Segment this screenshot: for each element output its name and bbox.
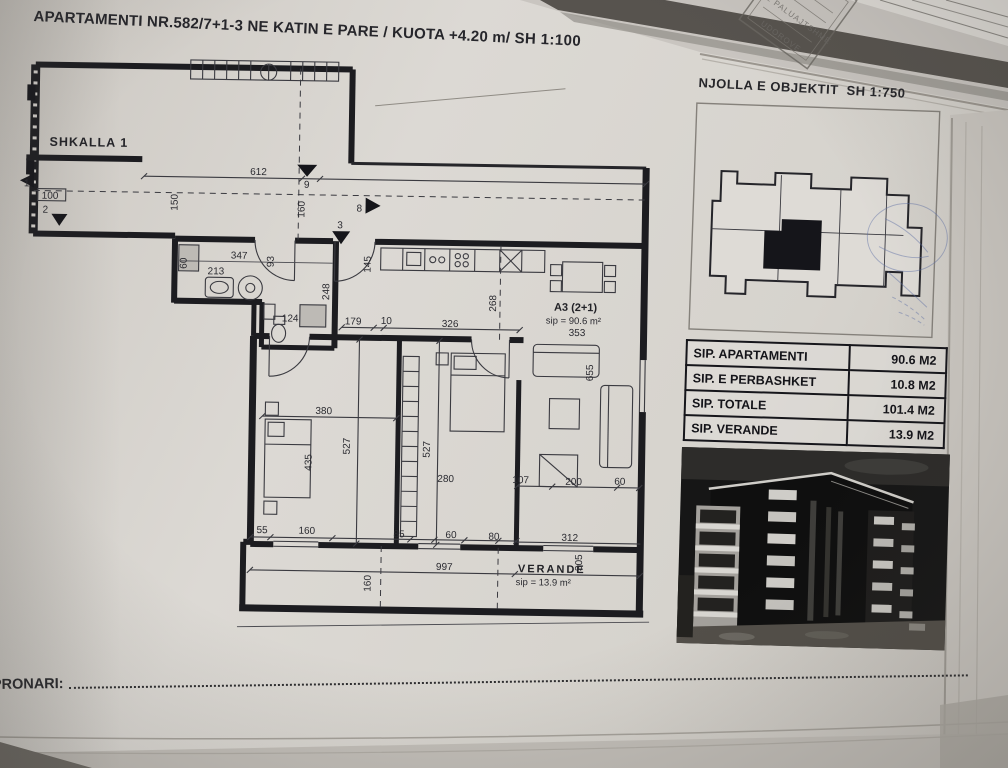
dim-100: 100 xyxy=(42,191,59,202)
dim-145: 145 xyxy=(363,256,374,273)
dim-200: 200 xyxy=(565,477,582,488)
plan-dimension-labels: 612 9 150 160 8 3 1 100 2 347 213 60 93 … xyxy=(18,163,631,595)
site-plan-scale: SH 1:750 xyxy=(846,83,906,101)
stair-label: SHKALLA 1 xyxy=(49,135,128,150)
unit-area-label: sip = 90.6 m² xyxy=(546,316,601,328)
dim-93: 93 xyxy=(266,256,277,268)
dim-8: 8 xyxy=(356,204,362,215)
dim-527a: 527 xyxy=(342,437,353,454)
building-footprint xyxy=(709,171,923,300)
dim-280: 280 xyxy=(437,474,454,485)
row-value: 90.6 M2 xyxy=(849,345,947,373)
dim-268: 268 xyxy=(488,294,499,311)
dim-60b: 60 xyxy=(614,477,626,488)
dim-435: 435 xyxy=(303,454,314,471)
left-balcony-tower xyxy=(693,505,740,628)
area-summary-table: SIP. APARTAMENTI 90.6 M2 SIP. E PERBASHK… xyxy=(683,339,948,449)
dim-353: 353 xyxy=(569,328,586,339)
windows xyxy=(273,354,645,552)
dim-2: 2 xyxy=(42,205,48,216)
floor-plan-drawing: SHKALLA 1 A3 (2+1) sip = 90.6 m² VERANDE… xyxy=(0,50,678,700)
dim-150: 150 xyxy=(169,193,180,210)
dim-612: 612 xyxy=(250,167,267,178)
row-value: 101.4 M2 xyxy=(848,395,946,423)
dim-3: 3 xyxy=(337,220,343,231)
dim-248: 248 xyxy=(321,283,332,300)
owner-label: PRONARI: xyxy=(0,676,64,693)
plan-bedroom-furniture xyxy=(263,350,505,538)
photographed-floorplan-page: E PALUAJTSHME UDOROVE APARTAMENTI NR.582… xyxy=(0,0,1008,768)
dim-179: 179 xyxy=(345,316,362,327)
unit-code-label: A3 (2+1) xyxy=(554,302,598,315)
dim-60: 60 xyxy=(179,257,190,269)
dim-347: 347 xyxy=(231,251,248,262)
plan-doors xyxy=(253,240,511,380)
dim-60c: 60 xyxy=(445,530,457,541)
dim-107: 107 xyxy=(512,475,529,486)
dim-10: 10 xyxy=(381,316,393,327)
dim-380: 380 xyxy=(315,406,332,417)
dim-305: 305 xyxy=(574,554,585,571)
dim-1: 1 xyxy=(24,178,30,189)
dim-655: 655 xyxy=(585,364,596,381)
dim-160c: 160 xyxy=(363,575,374,592)
right-balcony-stacks xyxy=(865,510,915,633)
dim-55: 55 xyxy=(256,525,268,536)
site-plan-drawing xyxy=(686,100,946,343)
plan-kitchen xyxy=(380,248,616,293)
plan-labels: SHKALLA 1 A3 (2+1) sip = 90.6 m² VERANDE… xyxy=(43,135,604,590)
dim-9: 9 xyxy=(304,180,310,191)
row-label: SIP. VERANDE xyxy=(684,415,848,445)
row-value: 10.8 M2 xyxy=(848,370,946,398)
page-title-scale: SH 1:100 xyxy=(514,30,581,50)
dim-160b: 160 xyxy=(298,526,315,537)
dim-124: 124 xyxy=(282,313,299,324)
dim-160: 160 xyxy=(296,200,307,217)
verande-area-label: sip = 13.9 m² xyxy=(516,577,571,589)
dim-527b: 527 xyxy=(422,440,433,457)
plan-living-furniture xyxy=(531,344,633,488)
row-value: 13.9 M2 xyxy=(847,420,945,448)
dim-85: 85 xyxy=(393,529,405,540)
dim-312: 312 xyxy=(561,533,578,544)
dim-213: 213 xyxy=(207,266,224,277)
dim-326: 326 xyxy=(442,319,459,330)
dim-997: 997 xyxy=(436,562,453,573)
dim-80: 80 xyxy=(488,532,500,543)
building-photo xyxy=(677,447,950,650)
